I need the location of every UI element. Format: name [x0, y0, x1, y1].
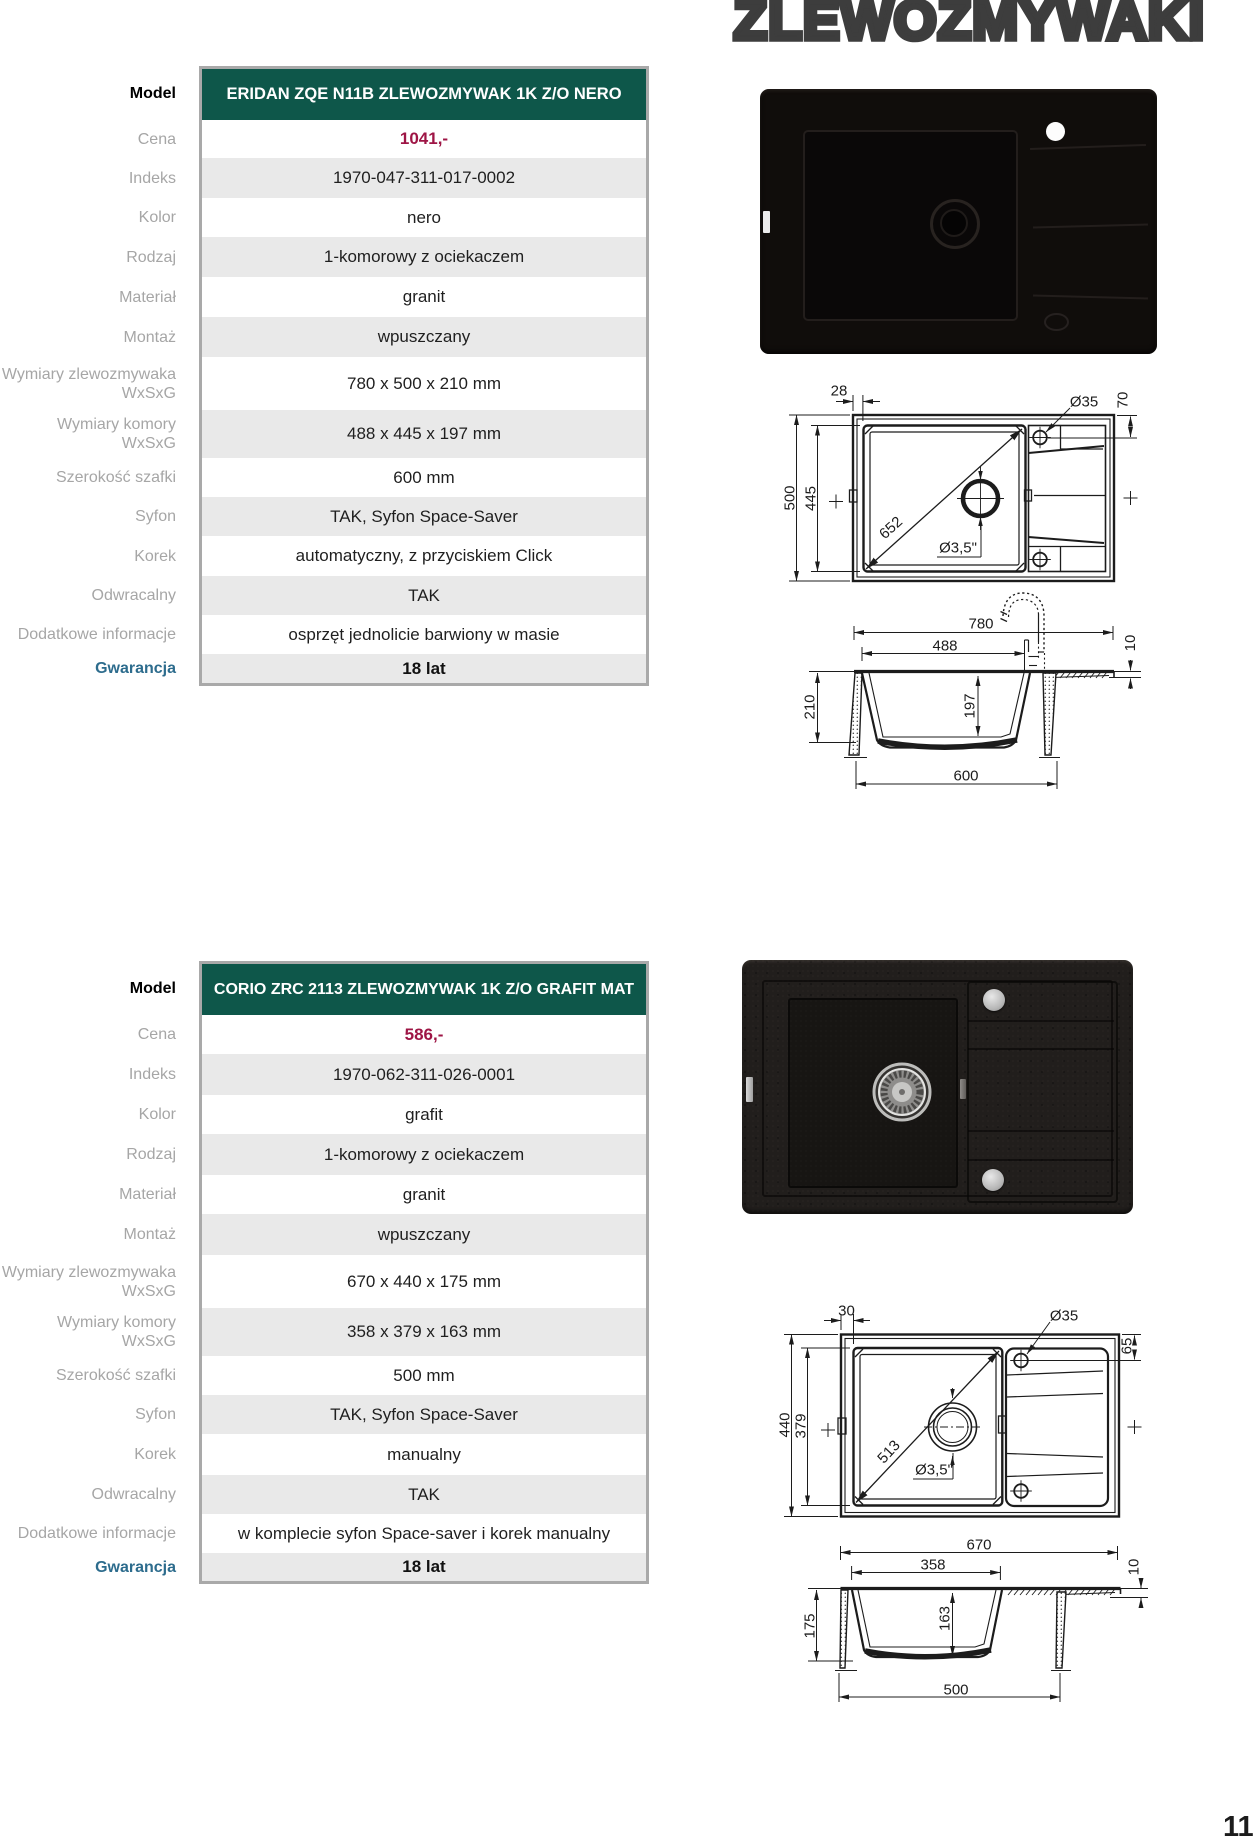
svg-text:28: 28 — [831, 383, 848, 400]
svg-text:379: 379 — [793, 1413, 810, 1438]
svg-text:652: 652 — [876, 513, 906, 542]
svg-text:488: 488 — [932, 638, 957, 655]
svg-text:440: 440 — [777, 1412, 794, 1437]
svg-text:70: 70 — [1115, 392, 1132, 409]
svg-text:Ø3,5": Ø3,5" — [939, 540, 977, 557]
svg-text:358: 358 — [920, 1557, 945, 1574]
svg-text:10: 10 — [1122, 635, 1139, 652]
svg-text:10: 10 — [1126, 1559, 1143, 1576]
svg-text:500: 500 — [943, 1682, 968, 1699]
svg-text:500: 500 — [782, 485, 799, 510]
svg-text:513: 513 — [874, 1437, 904, 1467]
svg-text:445: 445 — [803, 486, 820, 511]
svg-text:780: 780 — [968, 616, 993, 633]
svg-text:65: 65 — [1119, 1338, 1136, 1355]
svg-text:Ø3,5": Ø3,5" — [915, 1462, 953, 1479]
svg-text:210: 210 — [802, 694, 819, 719]
svg-text:30: 30 — [838, 1303, 855, 1320]
svg-text:175: 175 — [802, 1613, 819, 1638]
svg-text:163: 163 — [937, 1606, 954, 1631]
svg-text:600: 600 — [953, 768, 978, 785]
svg-text:197: 197 — [962, 693, 979, 718]
svg-text:Ø35: Ø35 — [1070, 394, 1098, 411]
svg-text:670: 670 — [966, 1537, 991, 1554]
svg-text:Ø35: Ø35 — [1050, 1308, 1078, 1325]
